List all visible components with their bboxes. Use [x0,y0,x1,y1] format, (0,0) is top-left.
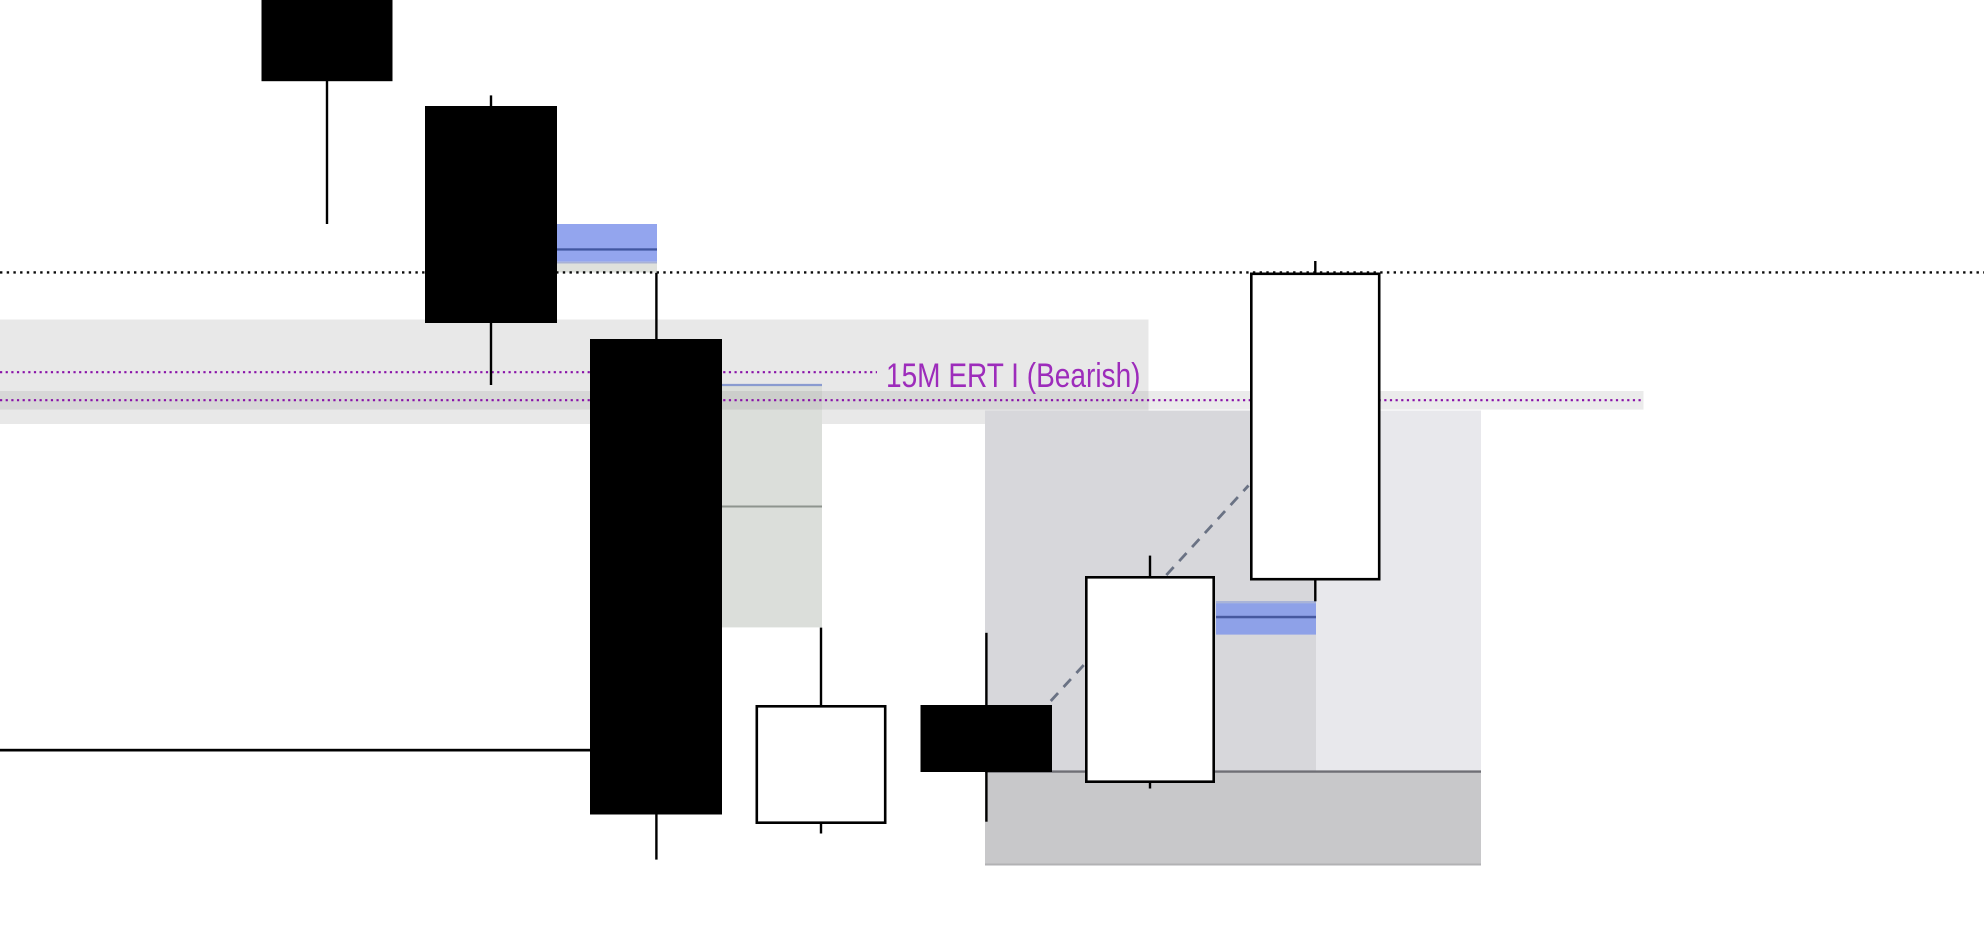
svg-text:15M ERT I (Bearish): 15M ERT I (Bearish) [886,357,1141,395]
